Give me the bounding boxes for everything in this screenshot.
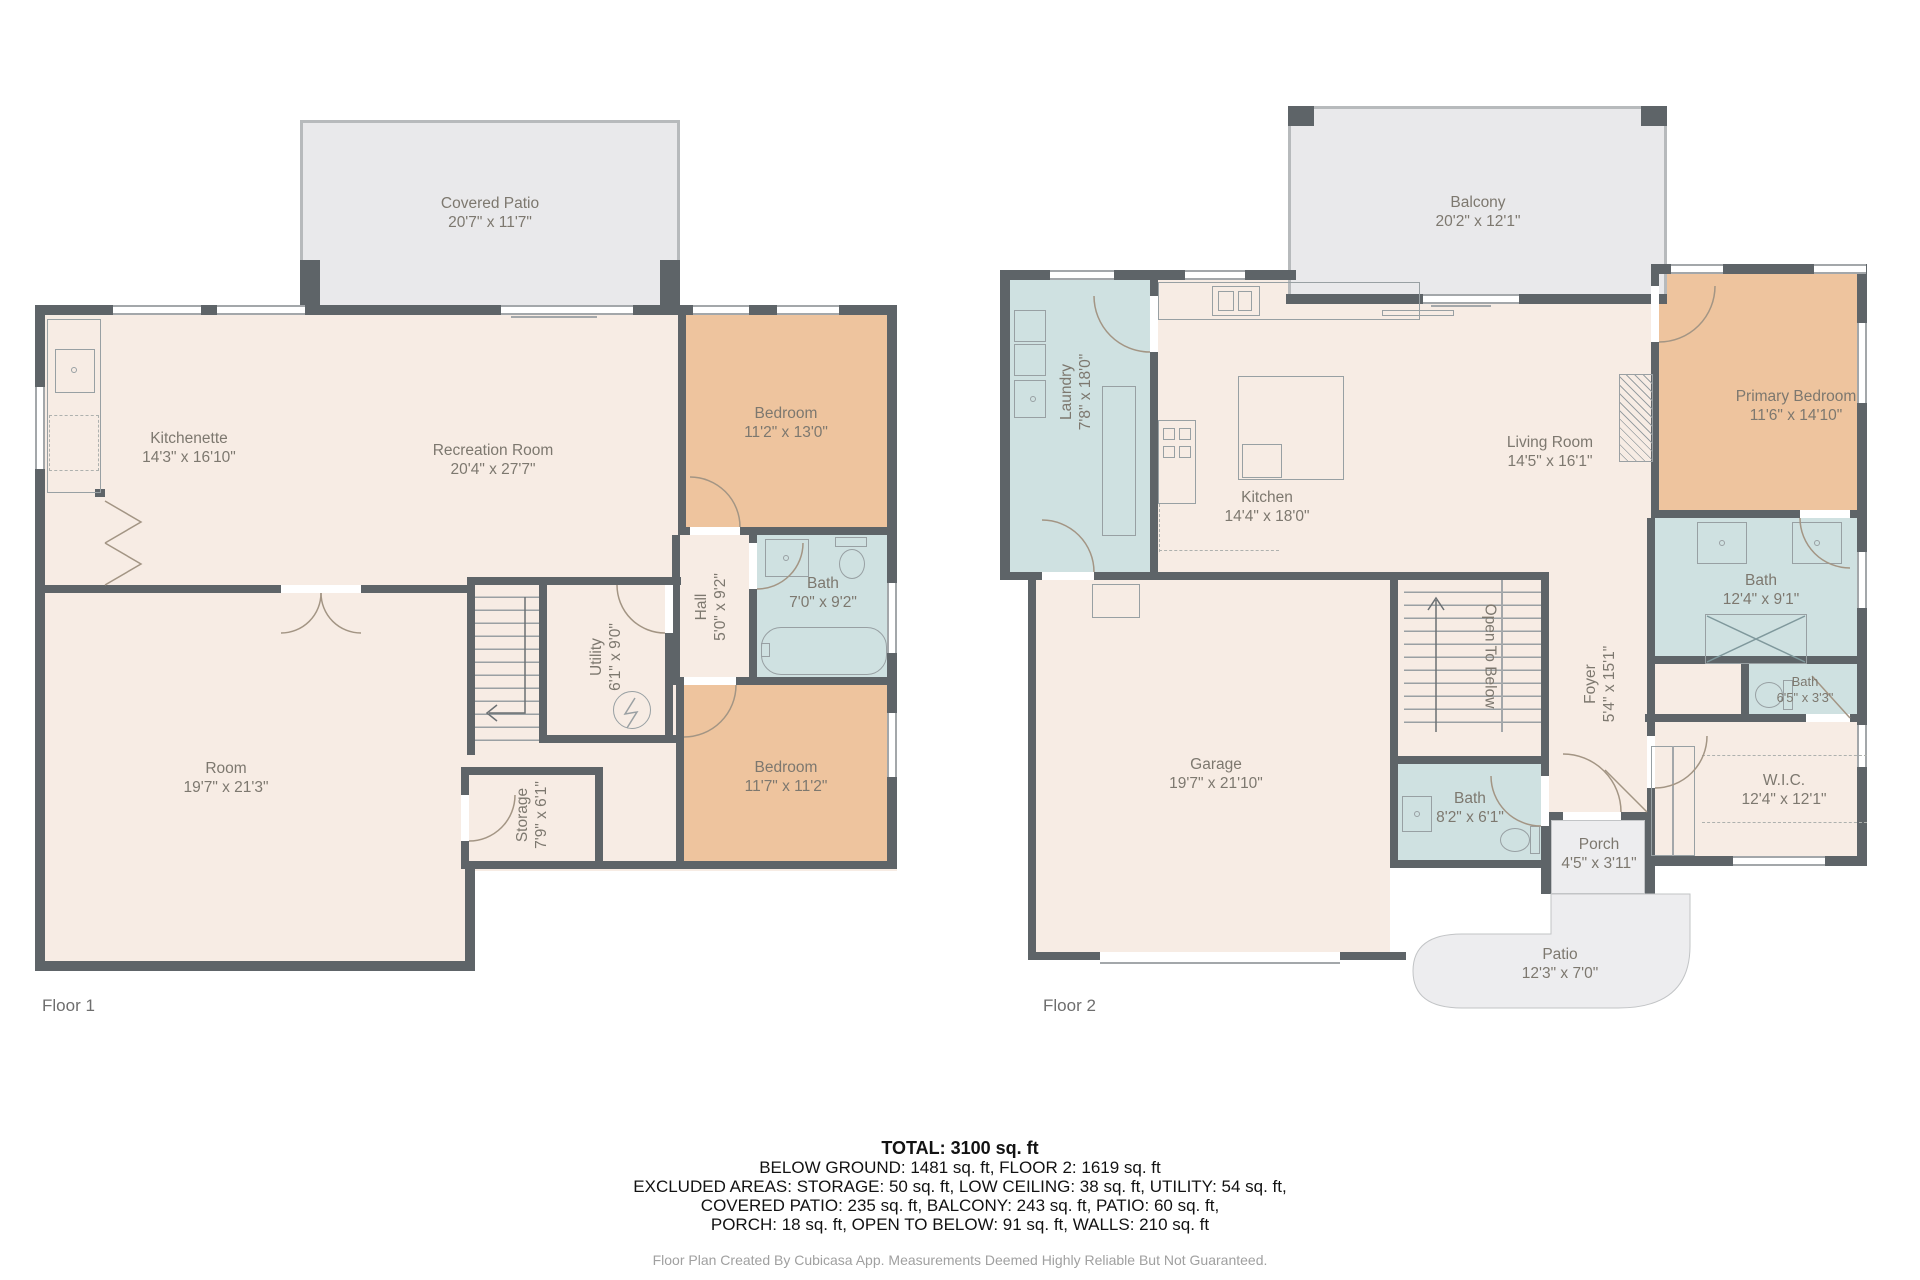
door-gap: [1150, 296, 1158, 352]
label-balcony: Balcony20'2" x 12'1": [1435, 193, 1520, 231]
wall: [465, 865, 475, 971]
dryer-icon: [1014, 344, 1046, 376]
window: [1671, 264, 1723, 274]
sliding-door-leaf: [1431, 305, 1491, 307]
summary-line: BELOW GROUND: 1481 sq. ft, FLOOR 2: 1619…: [0, 1158, 1920, 1177]
label-storage: Storage7'9" x 6'1": [513, 781, 551, 849]
label-bath-1: Bath7'0" x 9'2": [789, 574, 857, 612]
wall: [539, 577, 681, 585]
burner: [1163, 446, 1175, 458]
door-gap: [749, 543, 757, 589]
faucet-dot: [71, 367, 77, 373]
wall: [1398, 756, 1549, 764]
wall: [361, 585, 475, 593]
window: [1185, 270, 1245, 280]
window: [1733, 856, 1825, 866]
fireplace-icon: [1619, 374, 1653, 462]
label-bath-main: Bath12'4" x 9'1": [1723, 571, 1799, 609]
garage-door: [1100, 952, 1340, 960]
sliding-door-leaf: [511, 316, 597, 318]
window: [1814, 264, 1866, 274]
washer-icon: [1014, 310, 1046, 342]
floor2-plan: Balcony20'2" x 12'1" Laundry7'8" x 18'0"…: [1000, 100, 1910, 1040]
wall: [461, 767, 603, 775]
label-utility: Utility6'1" x 9'0": [587, 623, 625, 691]
garage-shelf: [1092, 584, 1140, 618]
summary-line: EXCLUDED AREAS: STORAGE: 50 sq. ft, LOW …: [0, 1177, 1920, 1196]
toilet-icon: [835, 537, 867, 547]
island-seat: [1242, 444, 1282, 478]
summary-total: TOTAL: 3100 sq. ft: [0, 1138, 1920, 1158]
counter-dashed: [1159, 550, 1279, 552]
window: [693, 305, 749, 315]
door-gap: [1563, 812, 1621, 820]
laundry-counter: [1102, 386, 1136, 536]
kitchen-counter: [1158, 282, 1420, 320]
patio-post: [300, 260, 320, 310]
window: [887, 713, 897, 777]
door-gap: [690, 527, 740, 535]
wall: [1000, 270, 1010, 580]
label-hall: Hall5'0" x 9'2": [692, 573, 730, 641]
door-gap: [461, 795, 469, 841]
door-gap: [1651, 286, 1659, 342]
sink-bowl: [1238, 291, 1252, 311]
wall: [672, 535, 680, 685]
stairs: [475, 585, 539, 751]
faucet-dot: [1414, 811, 1420, 817]
burner: [1163, 428, 1175, 440]
label-open-to-below: Open To Below: [1481, 604, 1500, 709]
label-patio: Patio12'3" x 7'0": [1522, 945, 1598, 983]
summary-line: COVERED PATIO: 235 sq. ft, BALCONY: 243 …: [0, 1196, 1920, 1215]
wall: [1390, 580, 1398, 868]
label-garage: Garage19'7" x 21'10": [1169, 755, 1263, 793]
wall: [467, 577, 547, 585]
door-gap: [1042, 572, 1094, 580]
window: [217, 305, 305, 315]
toilet-icon: [1500, 828, 1530, 852]
area-summary: TOTAL: 3100 sq. ft BELOW GROUND: 1481 sq…: [0, 1138, 1920, 1234]
wall: [41, 585, 281, 593]
label-room: Room19'7" x 21'3": [183, 759, 268, 797]
water-heater-icon: [613, 691, 651, 729]
shower-icon: [1705, 614, 1807, 664]
balcony-post: [1641, 106, 1667, 126]
label-kitchen: Kitchen14'4" x 18'0": [1224, 488, 1309, 526]
floor1-caption: Floor 1: [42, 996, 95, 1016]
door-gap: [1806, 714, 1850, 722]
door-gap: [665, 585, 673, 633]
counter-dashed: [1159, 504, 1161, 552]
window: [887, 583, 897, 653]
floor1-plan: Covered Patio20'7" x 11'7" Kitchenette14…: [35, 115, 910, 1015]
toilet-icon: [1530, 826, 1540, 854]
door-gap: [1541, 776, 1549, 826]
balcony-post: [1288, 106, 1314, 126]
tub-faucet: [761, 643, 770, 657]
window: [1050, 270, 1114, 280]
closet-rod: [1702, 822, 1867, 854]
closet-rod: [1702, 726, 1867, 756]
sliding-door: [1423, 294, 1519, 304]
summary-line: PORCH: 18 sq. ft, OPEN TO BELOW: 91 sq. …: [0, 1215, 1920, 1234]
floor2-caption: Floor 2: [1043, 996, 1096, 1016]
wall: [539, 735, 681, 743]
wall: [676, 685, 684, 865]
wall: [1000, 270, 1296, 280]
faucet-dot: [1030, 396, 1036, 402]
label-wic: W.I.C.12'4" x 12'1": [1741, 771, 1826, 809]
window: [1857, 323, 1867, 403]
label-primary-bedroom: Primary Bedroom11'6" x 14'10": [1736, 387, 1857, 425]
burner: [1179, 428, 1191, 440]
window: [35, 387, 45, 469]
label-recreation-room: Recreation Room20'4" x 27'7": [433, 441, 554, 479]
patio-post: [660, 260, 680, 310]
dishwasher-icon: [49, 415, 99, 471]
media-console: [1382, 310, 1454, 316]
garage-door-line: [1100, 962, 1340, 964]
faucet-dot: [783, 555, 789, 561]
bathtub-icon: [761, 627, 887, 675]
window: [1857, 552, 1867, 608]
label-bath-small: Bath6'5" x 3'3": [1777, 674, 1834, 706]
wall: [1028, 580, 1036, 960]
label-covered-patio: Covered Patio20'7" x 11'7": [441, 194, 539, 232]
label-bedroom-2: Bedroom11'7" x 11'2": [745, 758, 828, 796]
wall: [678, 311, 686, 535]
door-gap: [281, 585, 361, 593]
wall: [467, 577, 475, 755]
door-gap: [1800, 510, 1850, 518]
wall: [35, 961, 475, 971]
label-bedroom-1: Bedroom11'2" x 13'0": [744, 404, 828, 442]
sliding-door: [501, 305, 633, 315]
room-lower-extension: [41, 871, 469, 967]
disclaimer: Floor Plan Created By Cubicasa App. Meas…: [0, 1252, 1920, 1268]
label-bath-garage: Bath8'2" x 6'1": [1436, 789, 1504, 827]
wall: [539, 577, 547, 743]
faucet-dot: [1719, 540, 1725, 546]
label-living-room: Living Room14'5" x 16'1": [1507, 433, 1593, 471]
wall: [595, 767, 603, 869]
label-porch: Porch4'5" x 3'11": [1561, 835, 1636, 873]
label-kitchenette: Kitchenette14'3" x 16'10": [142, 429, 236, 467]
closet-divider: [1672, 746, 1674, 856]
window: [113, 305, 201, 315]
stair-rail: [1501, 580, 1503, 732]
sink-bowl: [1218, 291, 1234, 311]
stairs: [1404, 580, 1541, 732]
label-laundry: Laundry7'8" x 18'0": [1057, 354, 1095, 430]
wall: [1390, 860, 1549, 868]
faucet-dot: [1814, 540, 1820, 546]
window: [777, 305, 839, 315]
burner: [1179, 446, 1191, 458]
label-foyer: Foyer5'4" x 15'1": [1581, 646, 1619, 722]
door-gap: [684, 677, 736, 685]
